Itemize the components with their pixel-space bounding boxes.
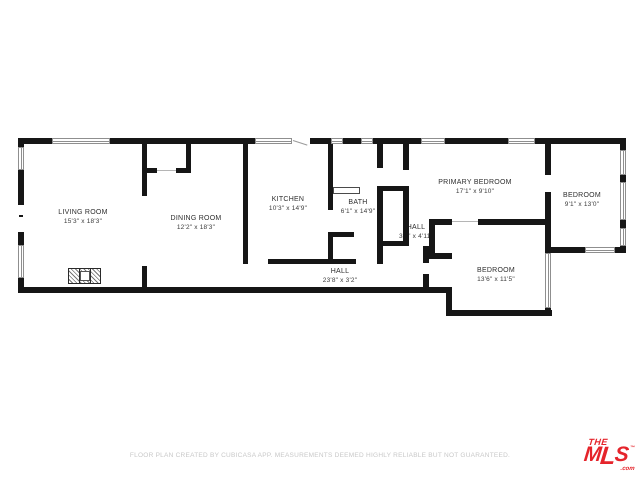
wall-segment [445, 138, 508, 144]
room-name: BATH [348, 199, 367, 206]
disclaimer-text: FLOOR PLAN CREATED BY CUBICASA APP. MEAS… [130, 452, 510, 459]
logo-com-text: .com [620, 466, 635, 472]
wall-segment [328, 232, 354, 237]
wall-segment [429, 253, 452, 259]
room-name: HALL [407, 224, 426, 231]
window [18, 245, 24, 278]
wall-segment [423, 274, 429, 288]
wall-segment [268, 259, 356, 264]
window [585, 247, 615, 253]
room-label-living: LIVING ROOM 15'3" x 18'3" [58, 208, 107, 226]
wall-segment [620, 220, 626, 228]
room-dimensions: 13'6" x 11'5" [477, 275, 515, 284]
closet-door-line [157, 170, 176, 171]
side-door-mark [19, 215, 23, 217]
wall-segment [377, 241, 409, 246]
room-dimensions: 15'3" x 18'3" [58, 217, 107, 226]
wall-segment [429, 219, 452, 225]
room-dimensions: 9'1" x 13'0" [563, 200, 601, 209]
room-name: PRIMARY BEDROOM [438, 179, 512, 186]
room-dimensions: 23'8" x 3'2" [323, 276, 357, 285]
wall-segment [343, 138, 361, 144]
room-name: HALL [331, 268, 350, 275]
wall-segment [110, 138, 255, 144]
wall-segment [142, 168, 157, 173]
room-name: KITCHEN [272, 196, 304, 203]
window [331, 138, 343, 144]
logo-trademark: ™ [629, 445, 635, 451]
window [18, 147, 24, 170]
wall-segment [403, 138, 409, 170]
room-dimensions: 10'3" x 14'9" [269, 204, 307, 213]
window [620, 228, 626, 246]
entry-door-leaf [293, 140, 308, 146]
room-label-kitchen: KITCHEN 10'3" x 14'9" [269, 195, 307, 213]
bathroom-vanity [333, 187, 360, 194]
room-label-dining: DINING ROOM 12'2" x 18'3" [171, 214, 222, 232]
wall-segment [176, 168, 191, 173]
fireplace [68, 268, 101, 284]
wall-segment [403, 186, 409, 246]
room-dimensions: 17'1" x 9'10" [438, 187, 512, 196]
wall-segment [18, 138, 24, 147]
wall-segment [620, 175, 626, 182]
room-name: DINING ROOM [171, 215, 222, 222]
room-name: LIVING ROOM [58, 209, 107, 216]
wall-segment [446, 310, 552, 316]
logo-mls-text: MLS [583, 443, 629, 465]
window [255, 138, 292, 144]
room-label-hall-long: HALL 23'8" x 3'2" [323, 267, 357, 285]
room-dimensions: 6'1" x 14'9" [341, 207, 375, 216]
wall-segment [545, 247, 585, 253]
wall-segment [377, 186, 383, 264]
bedroom-door-line [452, 221, 478, 222]
room-label-bedroom-bottom: BEDROOM 13'6" x 11'5" [477, 266, 515, 284]
themls-logo: THE MLS ™ .com [582, 437, 638, 473]
room-label-primary-bedroom: PRIMARY BEDROOM 17'1" x 9'10" [438, 178, 512, 196]
wall-segment [545, 138, 551, 175]
room-name: BEDROOM [477, 267, 515, 274]
window [52, 138, 110, 144]
fireplace-divider [90, 269, 91, 283]
floor-plan-page: LIVING ROOM 15'3" x 18'3" DINING ROOM 12… [0, 0, 640, 480]
room-label-bath: BATH 6'1" x 14'9" [341, 198, 375, 216]
wall-segment [377, 138, 383, 168]
window [508, 138, 535, 144]
wall-segment [545, 308, 551, 316]
wall-segment [328, 144, 333, 210]
wall-segment [18, 232, 24, 245]
wall-segment [478, 219, 545, 225]
window [361, 138, 373, 144]
window [421, 138, 445, 144]
wall-segment [620, 246, 626, 253]
wall-segment [545, 192, 551, 247]
wall-segment [243, 144, 248, 264]
wall-segment [18, 287, 452, 293]
window [620, 182, 626, 220]
wall-segment [18, 170, 24, 205]
wall-segment [142, 266, 147, 287]
window [620, 150, 626, 175]
window [545, 253, 551, 308]
wall-segment [620, 138, 626, 150]
fireplace-firebox [80, 271, 90, 281]
room-label-bedroom-right: BEDROOM 9'1" x 13'0" [563, 191, 601, 209]
room-dimensions: 12'2" x 18'3" [171, 223, 222, 232]
room-name: BEDROOM [563, 192, 601, 199]
